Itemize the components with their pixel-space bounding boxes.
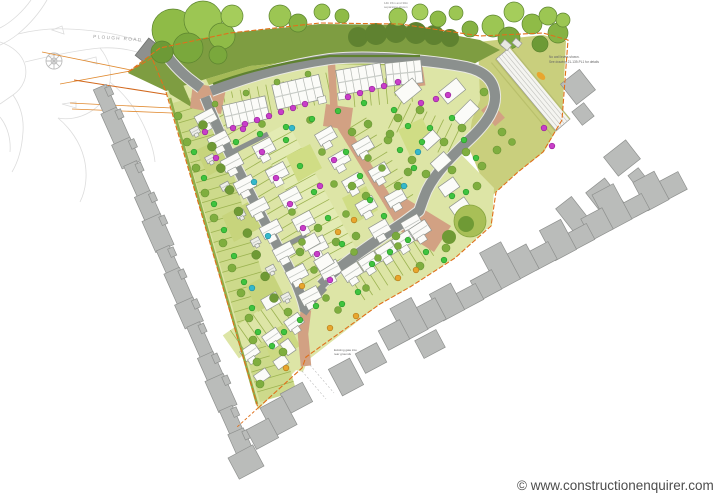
svg-text:© www.constructionenquirer.com: © www.constructionenquirer.com <box>517 478 714 493</box>
svg-text:See drawing 21-139-PL1 for det: See drawing 21-139-PL1 for details <box>549 60 599 64</box>
svg-text:PLOUGH ROAD: PLOUGH ROAD <box>93 34 143 42</box>
svg-text:separation shown: separation shown <box>384 5 408 9</box>
svg-text:No wall levels shown.: No wall levels shown. <box>549 55 580 59</box>
svg-text:rear grounds: rear grounds <box>334 352 352 356</box>
